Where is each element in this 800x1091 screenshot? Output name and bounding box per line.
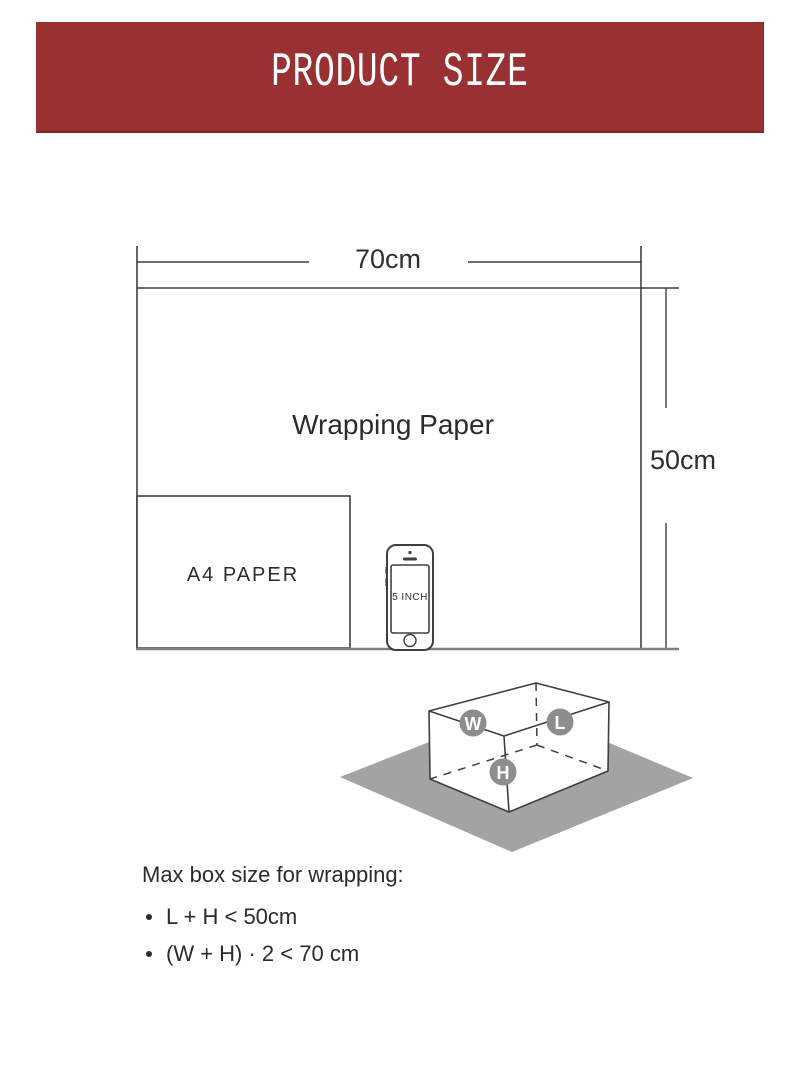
bullet-icon [146,951,152,957]
phone-volume-button [385,567,387,574]
rule-item: L + H < 50cm [142,904,404,930]
w-badge-letter: W [465,714,482,734]
box-illustration: W L H [340,683,693,852]
phone-volume-button [385,578,387,586]
height-label: 50cm [648,445,718,476]
paper-label: Wrapping Paper [257,409,529,441]
rule-item: (W + H) · 2 < 70 cm [142,941,404,967]
a4-label: A4 PAPER [136,564,350,587]
l-badge: L [547,709,574,736]
max-size-rules: Max box size for wrapping: L + H < 50cm … [142,862,404,978]
infographic-page: PRODUCT SIZE [0,0,800,1091]
w-badge: W [460,710,487,737]
rule-text: (W + H) · 2 < 70 cm [166,941,359,967]
width-label: 70cm [340,244,436,275]
h-badge-letter: H [497,763,510,783]
bullet-icon [146,914,152,920]
max-size-heading: Max box size for wrapping: [142,862,404,888]
h-badge: H [490,759,517,786]
phone-home-button [404,635,416,647]
rule-text: L + H < 50cm [166,904,297,930]
phone-size-label: 5 INCH [389,592,431,603]
phone-camera-dot [408,551,411,554]
l-badge-letter: L [555,713,566,733]
phone-speaker [403,558,417,561]
